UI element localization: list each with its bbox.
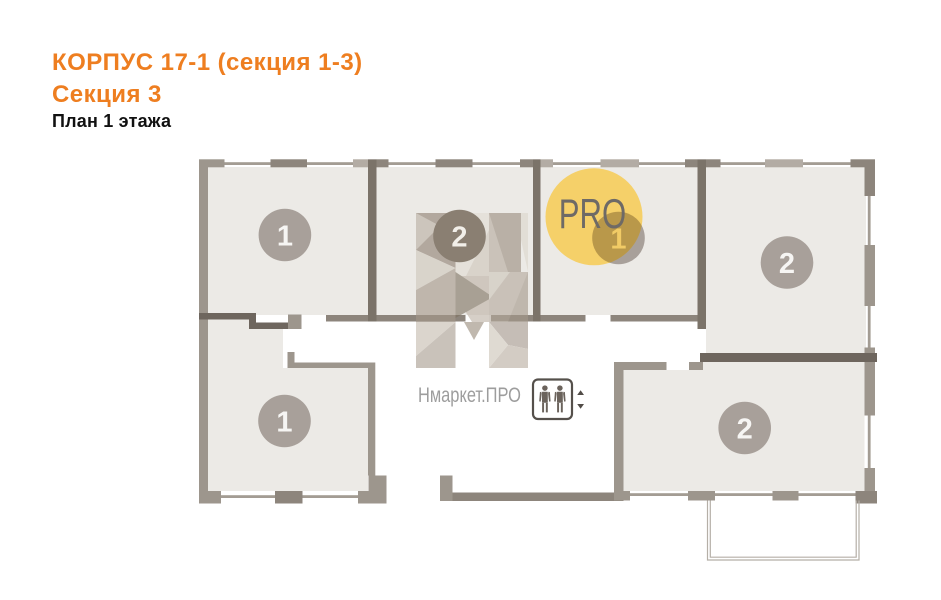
svg-text:2: 2 bbox=[737, 414, 753, 446]
svg-text:2: 2 bbox=[451, 222, 467, 254]
svg-text:PRO: PRO bbox=[559, 190, 626, 236]
svg-text:1: 1 bbox=[276, 407, 292, 439]
svg-text:2: 2 bbox=[779, 248, 795, 280]
svg-text:Нмаркет.ПРО: Нмаркет.ПРО bbox=[418, 384, 521, 408]
svg-text:1: 1 bbox=[277, 221, 293, 253]
